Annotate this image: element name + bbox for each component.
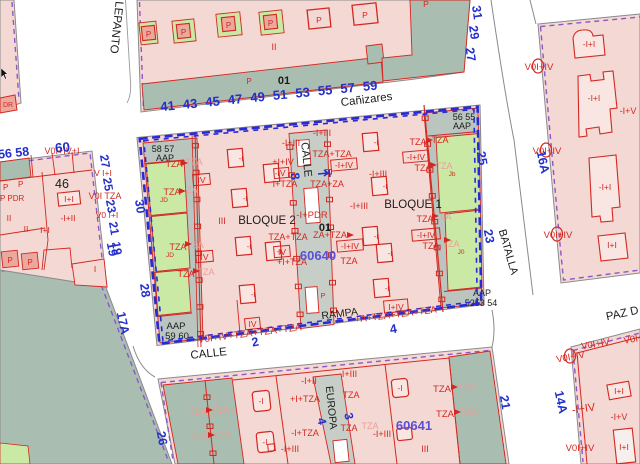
svg-text:P: P: [146, 30, 151, 39]
svg-text:43: 43: [182, 96, 198, 112]
svg-text:-I+III: -I+III: [282, 138, 300, 148]
svg-text:59: 59: [362, 78, 378, 94]
svg-text:-I+III: -I+III: [281, 444, 299, 454]
svg-text:TZA: TZA: [417, 214, 434, 224]
svg-text:P: P: [246, 77, 251, 86]
svg-text:TZA: TZA: [415, 163, 432, 173]
svg-text:45: 45: [205, 93, 221, 109]
svg-text:-I: -I: [263, 438, 268, 447]
svg-text:TZA: TZA: [436, 161, 453, 171]
svg-text:BLOQUE 1: BLOQUE 1: [384, 199, 442, 211]
svg-text:P: P: [7, 256, 12, 265]
svg-text:-I: -I: [251, 290, 256, 299]
svg-text:TZA: TZA: [341, 256, 358, 266]
svg-text:-I+I: -I+I: [599, 182, 612, 192]
svg-text:ZA: ZA: [192, 240, 204, 250]
svg-text:P: P: [268, 19, 273, 28]
svg-text:28: 28: [137, 283, 153, 299]
svg-text:29: 29: [466, 25, 482, 41]
svg-text:+I+IV: +I+IV: [272, 157, 294, 167]
svg-text:60: 60: [54, 139, 71, 155]
svg-text:P: P: [362, 10, 368, 20]
svg-text:P: P: [226, 21, 231, 30]
svg-text:-I+III: -I+III: [339, 369, 357, 379]
svg-text:-I: -I: [247, 242, 252, 251]
svg-text:46: 46: [55, 177, 69, 191]
svg-text:P: P: [18, 180, 23, 189]
svg-text:30: 30: [132, 199, 148, 215]
svg-text:III: III: [218, 216, 226, 226]
svg-text:BLOQUE 2: BLOQUE 2: [238, 215, 296, 227]
svg-text:-I+PDR: -I+PDR: [296, 210, 328, 221]
svg-text:19: 19: [109, 241, 125, 257]
svg-text:-I+II: -I+II: [301, 376, 317, 386]
svg-text:TZA: TZA: [432, 135, 449, 145]
svg-text:01: 01: [278, 75, 290, 87]
svg-text:P: P: [320, 291, 325, 300]
svg-text:-I: -I: [388, 249, 393, 258]
svg-text:P: P: [316, 15, 322, 25]
svg-text:TZA+ZA: TZA+ZA: [310, 179, 344, 189]
svg-text:P: P: [423, 0, 429, 9]
svg-text:I: I: [94, 264, 96, 274]
svg-text:TZA: TZA: [189, 407, 208, 418]
svg-text:TZA: TZA: [170, 242, 187, 252]
svg-text:ZA: ZA: [186, 185, 198, 195]
svg-text:51: 51: [272, 87, 288, 103]
svg-text:25: 25: [474, 150, 490, 166]
svg-text:-I+IV: -I+IV: [407, 152, 426, 162]
svg-text:TZA: TZA: [343, 390, 360, 400]
svg-text:TZA: TZA: [178, 269, 195, 279]
svg-text:-I+III: -I+III: [373, 429, 391, 439]
svg-text:-I+II: -I+II: [61, 213, 76, 223]
svg-text:-I: -I: [398, 384, 403, 393]
svg-text:25: 25: [100, 177, 116, 193]
svg-text:-I: -I: [385, 284, 390, 293]
svg-text:P: P: [3, 183, 8, 192]
svg-text:V0I+IV: V0I+IV: [566, 443, 595, 454]
svg-text:Jb: Jb: [449, 171, 456, 178]
svg-text:JD: JD: [160, 197, 168, 204]
svg-text:27: 27: [463, 47, 479, 63]
svg-text:-I+IV: -I+IV: [417, 230, 436, 240]
svg-text:I+I: I+I: [619, 442, 629, 452]
svg-text:55: 55: [317, 82, 333, 98]
svg-text:60641: 60641: [396, 418, 432, 433]
svg-text:AAP: AAP: [453, 121, 471, 131]
svg-text:-I+IV: -I+IV: [341, 241, 360, 251]
svg-text:TZA: TZA: [457, 382, 476, 393]
svg-text:26: 26: [154, 430, 170, 446]
svg-text:-I+V: -I+V: [620, 106, 637, 116]
svg-text:47: 47: [227, 91, 243, 107]
svg-text:IV: IV: [278, 247, 286, 257]
svg-text:V0I+IV: V0I+IV: [525, 62, 554, 73]
svg-text:-I+IV: -I+IV: [335, 160, 354, 170]
svg-text:ZA+TZA: ZA+TZA: [313, 230, 347, 240]
svg-text:-I: -I: [243, 194, 248, 203]
svg-text:TZA: TZA: [198, 267, 215, 277]
svg-text:-I: -I: [239, 154, 244, 163]
svg-text:-I+III: -I+III: [350, 201, 368, 211]
svg-text:IV: IV: [197, 175, 205, 185]
svg-text:III: III: [421, 444, 429, 454]
svg-text:-I: -I: [374, 232, 379, 241]
svg-text:V0I+IV: V0I+IV: [544, 230, 573, 241]
svg-text:57: 57: [340, 80, 356, 96]
svg-text:I+I: I+I: [614, 386, 624, 396]
svg-text:31: 31: [469, 5, 485, 21]
svg-text:TZA: TZA: [166, 159, 183, 169]
svg-text:-I: -I: [383, 182, 388, 191]
svg-text:P: P: [181, 28, 186, 37]
svg-text:LA: LA: [440, 212, 451, 222]
svg-text:J0: J0: [458, 249, 465, 256]
svg-text:-I: -I: [374, 138, 379, 147]
svg-text:-I+I: -I+I: [583, 39, 596, 49]
svg-text:IV: IV: [200, 252, 208, 262]
svg-text:TZA: TZA: [191, 432, 210, 443]
svg-text:TZA+TZA: TZA+TZA: [312, 149, 351, 159]
svg-text:TZA: TZA: [186, 157, 203, 167]
svg-text:P: P: [27, 258, 32, 267]
svg-text:53: 53: [295, 84, 311, 100]
svg-text:P PDR: P PDR: [0, 194, 25, 203]
svg-text:TZA: TZA: [164, 187, 181, 197]
svg-text:27: 27: [97, 154, 113, 170]
svg-text:DR: DR: [3, 102, 13, 109]
svg-text:TZA: TZA: [433, 384, 452, 395]
svg-text:23: 23: [481, 228, 497, 244]
svg-text:TZA: TZA: [410, 137, 427, 147]
svg-text:TZA: TZA: [213, 430, 232, 441]
svg-text:-I+III: -I+III: [369, 169, 387, 179]
svg-text:49: 49: [250, 89, 266, 105]
svg-text:-I+V: -I+V: [611, 412, 628, 422]
svg-text:+I+TZA: +I+TZA: [290, 394, 320, 404]
svg-text:21: 21: [106, 221, 122, 237]
svg-text:II: II: [271, 42, 276, 52]
svg-text:I+I: I+I: [64, 194, 74, 204]
svg-text:21: 21: [497, 394, 513, 410]
svg-text:I+TZA: I+TZA: [273, 179, 298, 189]
svg-text:IV: IV: [277, 168, 285, 178]
svg-text:-I: -I: [259, 397, 264, 406]
svg-text:II: II: [24, 224, 29, 234]
svg-text:II: II: [7, 213, 12, 223]
svg-text:23: 23: [103, 199, 119, 215]
svg-text:60640: 60640: [300, 248, 336, 263]
svg-text:JD: JD: [166, 252, 174, 259]
svg-text:-I+III: -I+III: [313, 128, 331, 138]
svg-text:41: 41: [160, 98, 176, 114]
svg-text:-I+TZA: -I+TZA: [291, 428, 319, 438]
svg-text:TZA+TZA: TZA+TZA: [268, 232, 307, 242]
svg-text:TZA: TZA: [459, 407, 478, 418]
svg-text:TZA: TZA: [341, 423, 358, 433]
svg-text:TZA: TZA: [211, 405, 230, 416]
svg-text:TZA: TZA: [436, 409, 455, 420]
svg-text:I+I: I+I: [607, 240, 617, 250]
svg-text:TZA: TZA: [423, 241, 440, 251]
svg-text:-I+I: -I+I: [588, 93, 601, 103]
svg-text:I+I: I+I: [40, 225, 50, 235]
